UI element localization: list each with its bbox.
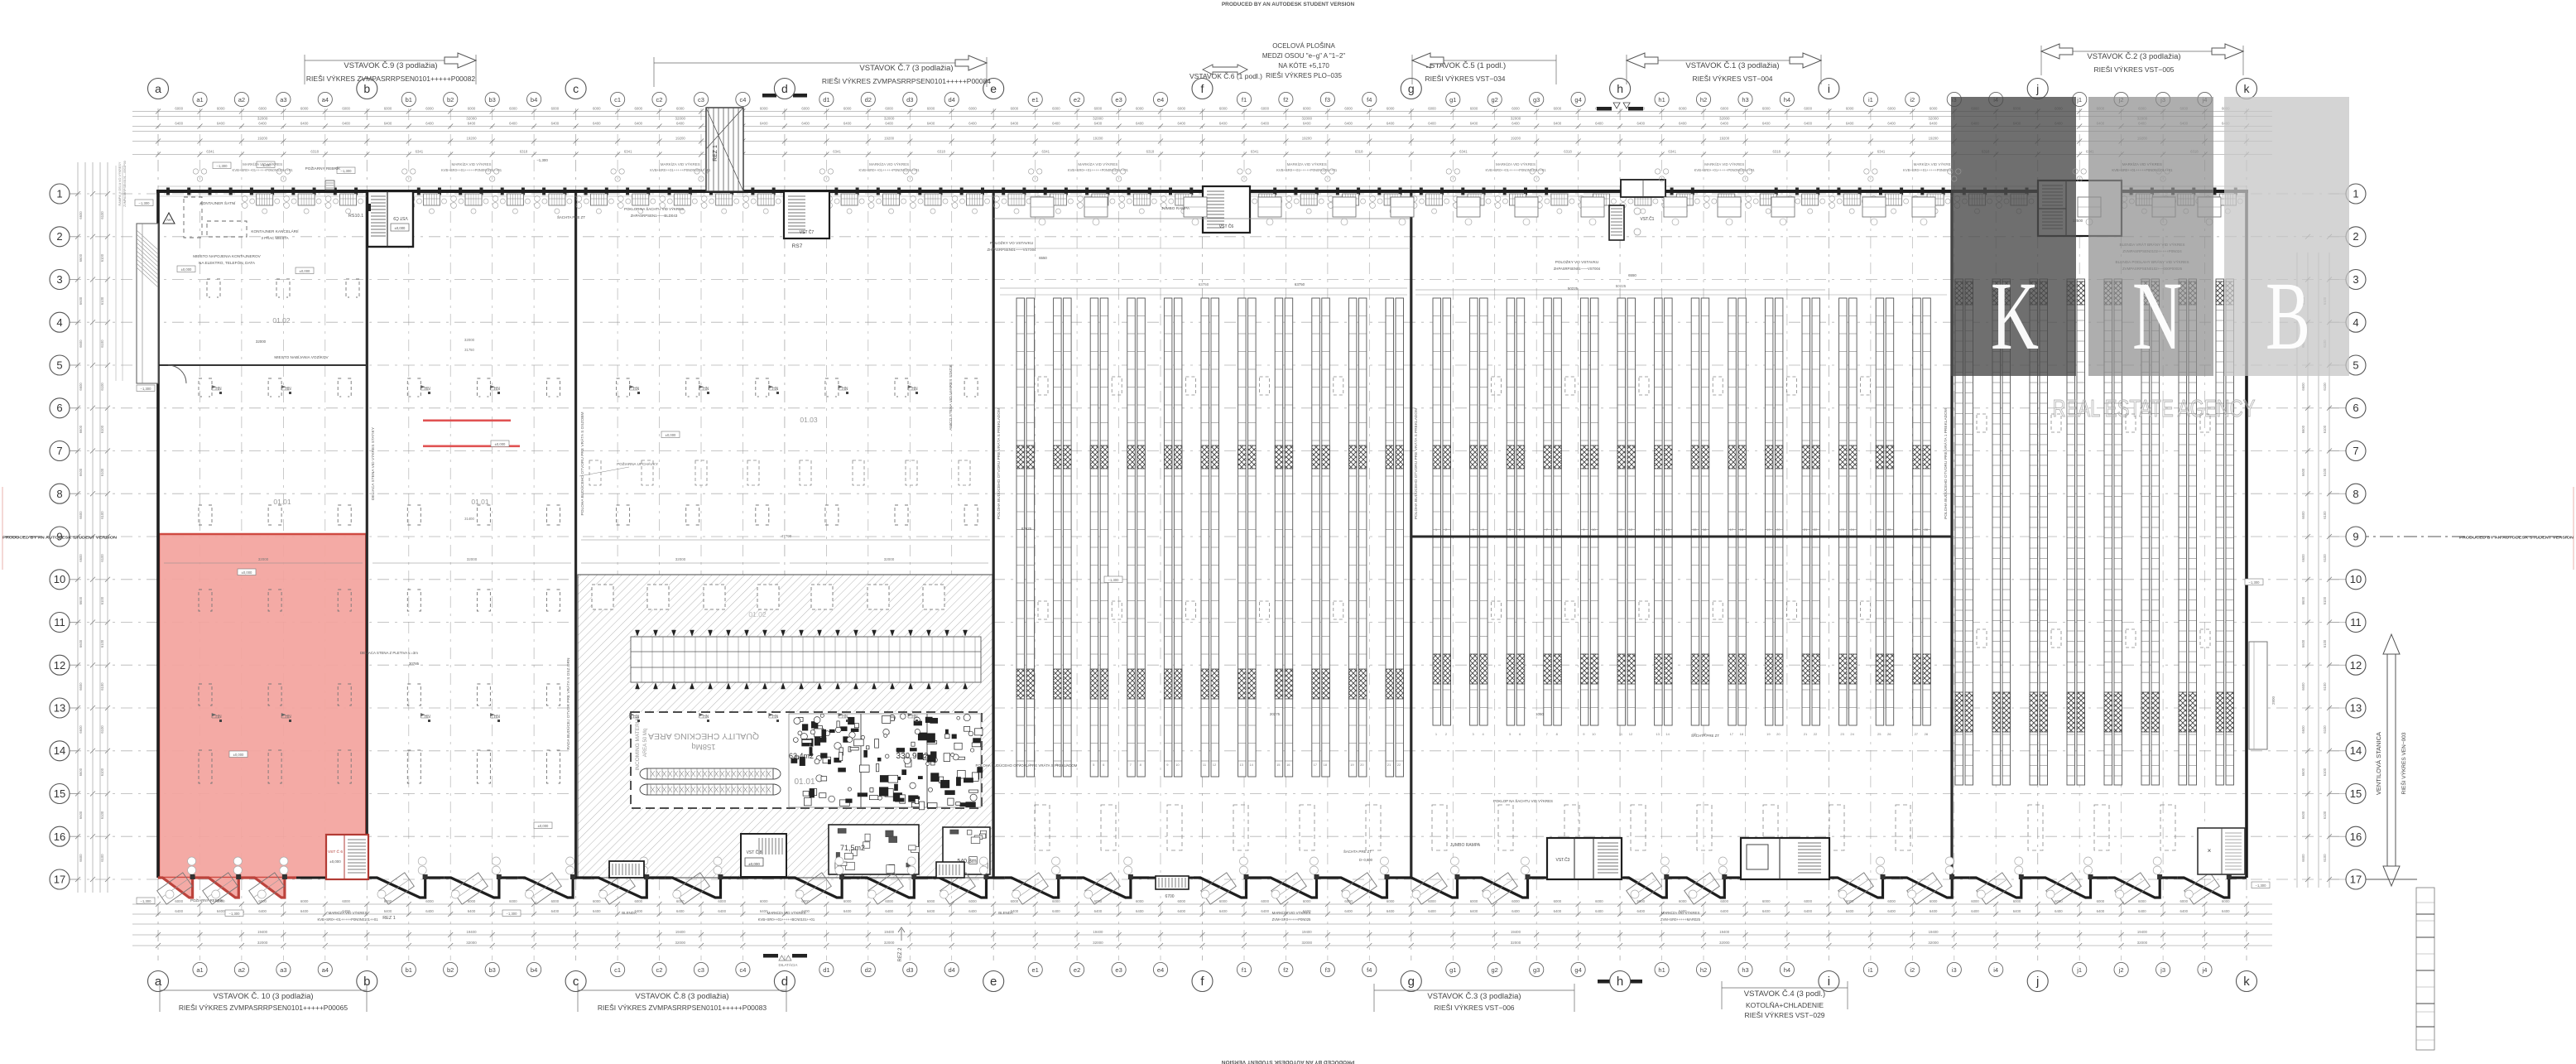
svg-text:c2: c2 [656, 96, 663, 104]
svg-text:±0,000: ±0,000 [329, 859, 341, 864]
svg-text:16: 16 [54, 830, 65, 843]
svg-text:ZHPASRPSEN1——BLD043: ZHPASRPSEN1——BLD043 [631, 214, 678, 218]
svg-text:28: 28 [1925, 732, 1929, 736]
svg-text:6600: 6600 [79, 383, 83, 391]
svg-text:6400: 6400 [1887, 909, 1896, 913]
svg-text:VSTAVOK Č.1 (3 podlažia): VSTAVOK Č.1 (3 podlažia) [1685, 61, 1779, 70]
svg-text:DELIACA STENA VID VÝKRES STATI: DELIACA STENA VID VÝKRES STATIKY [370, 426, 376, 500]
svg-text:MARKÍZA VID VÝKRES: MARKÍZA VID VÝKRES [1496, 161, 1536, 166]
svg-text:NA ELEKTRO, TELEFÓN, DATA: NA ELEKTRO, TELEFÓN, DATA [199, 260, 256, 265]
svg-text:6600: 6600 [79, 253, 83, 262]
svg-text:6318: 6318 [1773, 150, 1781, 154]
svg-text:6550: 6550 [1628, 273, 1636, 277]
svg-text:POŽIARNY REBRÍK: POŽIARNY REBRÍK [305, 165, 342, 171]
svg-text:POLOHA BUDÚCEHO OTVORU PRE VRÁ: POLOHA BUDÚCEHO OTVORU PRE VRÁTA 1 PREKL… [1943, 408, 1949, 519]
svg-text:6000: 6000 [635, 899, 643, 903]
svg-text:BLENDA: BLENDA [998, 911, 1013, 915]
svg-text:c2: c2 [656, 966, 663, 974]
svg-text:a2: a2 [238, 96, 245, 104]
svg-text:f2: f2 [1283, 966, 1288, 974]
svg-text:6400: 6400 [760, 122, 768, 126]
svg-text:f2: f2 [1283, 96, 1288, 104]
svg-text:18: 18 [1740, 527, 1744, 532]
svg-text:D−0,600: D−0,600 [1359, 858, 1373, 862]
svg-text:6100: 6100 [2323, 854, 2327, 862]
svg-text:f: f [1201, 82, 1204, 95]
svg-text:6600: 6600 [79, 511, 83, 519]
svg-text:6400: 6400 [885, 122, 893, 126]
svg-text:6400: 6400 [1554, 122, 1562, 126]
svg-text:POŽIARNY REBRÍK: POŽIARNY REBRÍK [190, 898, 223, 903]
svg-text:6600: 6600 [79, 339, 83, 348]
svg-text:MARKÍZA VID VÝKRES: MARKÍZA VID VÝKRES [2122, 161, 2162, 166]
svg-text:f4: f4 [1367, 96, 1372, 104]
svg-text:6400: 6400 [551, 909, 560, 913]
svg-text:b2: b2 [447, 966, 454, 974]
svg-text:c: c [573, 82, 579, 95]
svg-text:19200: 19200 [1929, 137, 1939, 141]
svg-text:6100: 6100 [2323, 425, 2327, 433]
svg-text:6600: 6600 [79, 725, 83, 734]
svg-text:6400: 6400 [1136, 122, 1144, 126]
svg-text:6400: 6400 [1261, 909, 1269, 913]
svg-text:6400: 6400 [1637, 122, 1646, 126]
svg-text:12: 12 [1629, 527, 1633, 532]
svg-text:MARKÍZA VID VÝKRES: MARKÍZA VID VÝKRES [451, 161, 491, 166]
svg-text:19200: 19200 [675, 137, 686, 141]
svg-text:RIEŠI VÝKRES VST−004: RIEŠI VÝKRES VST−004 [1692, 75, 1772, 83]
svg-text:6000: 6000 [1804, 899, 1812, 903]
svg-text:6000: 6000 [843, 107, 852, 111]
svg-text:6100: 6100 [2323, 725, 2327, 734]
svg-text:32000: 32000 [1928, 117, 1939, 121]
svg-text:6341: 6341 [416, 150, 424, 154]
svg-text:VSTAVOK Č.7 (3 podlažia): VSTAVOK Č.7 (3 podlažia) [859, 64, 953, 73]
svg-text:a1: a1 [196, 96, 203, 104]
svg-text:6100: 6100 [100, 854, 104, 862]
svg-text:i2: i2 [1910, 966, 1915, 974]
svg-text:6000: 6000 [1679, 107, 1687, 111]
svg-text:6100: 6100 [100, 339, 104, 348]
svg-text:±0,000: ±0,000 [748, 862, 760, 866]
svg-text:19400: 19400 [2137, 930, 2148, 934]
svg-text:6000: 6000 [175, 107, 183, 111]
svg-text:32000: 32000 [675, 117, 686, 121]
svg-text:31400: 31400 [464, 517, 474, 521]
svg-text:6600: 6600 [2301, 854, 2305, 862]
svg-text:a1: a1 [196, 966, 203, 974]
svg-text:POŽIARNA UPCHÁVKY: POŽIARNA UPCHÁVKY [617, 460, 658, 466]
svg-text:6100: 6100 [100, 811, 104, 819]
svg-text:6000: 6000 [1679, 899, 1687, 903]
svg-text:6318: 6318 [520, 150, 528, 154]
svg-text:h3: h3 [1742, 96, 1748, 104]
svg-text:f3: f3 [1325, 96, 1330, 104]
svg-text:11: 11 [2350, 616, 2362, 628]
svg-text:HN: HN [911, 387, 918, 392]
svg-text:6000: 6000 [801, 107, 810, 111]
svg-text:RIEŠI VÝKRES ZVMPASRRPSEN0101+: RIEŠI VÝKRES ZVMPASRRPSEN0101+++++P00082 [306, 75, 475, 83]
svg-text:AREA 50 Mq: AREA 50 Mq [643, 729, 648, 757]
svg-text:32000: 32000 [257, 117, 268, 121]
svg-text:6400: 6400 [1094, 909, 1103, 913]
svg-text:KOTOLŇA+CHLADENIE: KOTOLŇA+CHLADENIE [1746, 1001, 1824, 1009]
svg-text:b4: b4 [531, 966, 537, 974]
svg-text:6400: 6400 [468, 122, 476, 126]
svg-text:d1: d1 [823, 966, 829, 974]
svg-text:2: 2 [2353, 230, 2358, 243]
svg-text:6400: 6400 [927, 122, 935, 126]
svg-text:6400: 6400 [1136, 909, 1144, 913]
svg-text:d3: d3 [906, 96, 913, 104]
svg-text:−1,300: −1,300 [2256, 883, 2267, 888]
svg-text:b3: b3 [489, 96, 496, 104]
svg-text:b4: b4 [531, 96, 537, 104]
svg-text:c1: c1 [614, 96, 621, 104]
svg-text:6000: 6000 [1094, 107, 1103, 111]
svg-text:32000: 32000 [466, 941, 477, 945]
svg-text:19400: 19400 [467, 930, 478, 934]
svg-text:6400: 6400 [1971, 909, 1979, 913]
svg-text:VSTAVOK Č.9 (3 podlažia): VSTAVOK Č.9 (3 podlažia) [344, 61, 437, 70]
svg-text:6000: 6000 [1428, 899, 1436, 903]
svg-text:6000: 6000 [1261, 107, 1269, 111]
svg-text:158Mq: 158Mq [691, 742, 715, 751]
svg-text:32000: 32000 [466, 117, 477, 121]
svg-text:16: 16 [1286, 763, 1290, 767]
svg-text:6400: 6400 [1595, 122, 1603, 126]
svg-text:AH: AH [166, 218, 171, 222]
svg-text:32000: 32000 [1719, 941, 1730, 945]
svg-text:12: 12 [1629, 732, 1633, 736]
svg-text:19400: 19400 [675, 930, 686, 934]
svg-text:MEDZI OSOU "e−g" A "1−2": MEDZI OSOU "e−g" A "1−2" [1262, 52, 1345, 60]
svg-text:HN: HN [633, 715, 640, 720]
svg-text:RIEŠI VÝKRES ZVMPASRRPSEN0101+: RIEŠI VÝKRES ZVMPASRRPSEN0101+++++P00083 [598, 1004, 767, 1012]
svg-text:6600: 6600 [2301, 468, 2305, 476]
svg-text:6000: 6000 [1595, 899, 1603, 903]
svg-text:−1,300: −1,300 [141, 899, 152, 903]
svg-text:6000: 6000 [1303, 107, 1311, 111]
svg-text:6000: 6000 [676, 107, 685, 111]
svg-text:b3: b3 [489, 966, 496, 974]
svg-text:KVB+SR0++01+++++P0N0N0101++01: KVB+SR0++01+++++P0N0N0101++01 [233, 168, 294, 172]
svg-text:HN: HN [842, 715, 848, 720]
svg-text:6000: 6000 [1554, 107, 1562, 111]
svg-text:6400: 6400 [551, 122, 560, 126]
svg-text:MARKÍZA VID VÝKRES: MARKÍZA VID VÝKRES [1272, 911, 1311, 915]
svg-text:h: h [1617, 82, 1623, 95]
svg-text:2800: 2800 [2271, 696, 2276, 705]
svg-text:22: 22 [1814, 527, 1818, 532]
svg-text:32000: 32000 [258, 557, 269, 561]
svg-text:6100: 6100 [2323, 682, 2327, 691]
svg-text:01.01: 01.01 [471, 498, 489, 506]
svg-text:27: 27 [1915, 732, 1919, 736]
svg-text:26: 26 [1887, 527, 1891, 532]
svg-text:a: a [155, 975, 162, 989]
svg-text:22: 22 [1397, 763, 1401, 767]
svg-text:i3: i3 [1952, 966, 1957, 974]
svg-text:RS10.1: RS10.1 [348, 214, 363, 219]
svg-text:01.01: 01.01 [273, 498, 291, 506]
svg-text:6000: 6000 [1470, 107, 1478, 111]
svg-text:6600: 6600 [2301, 554, 2305, 562]
svg-text:±0,000: ±0,000 [300, 269, 310, 273]
svg-text:e4: e4 [1157, 96, 1164, 104]
svg-text:24: 24 [1850, 732, 1854, 736]
svg-text:20: 20 [1776, 527, 1781, 532]
svg-text:6000: 6000 [1136, 899, 1144, 903]
svg-text:6100: 6100 [100, 596, 104, 604]
svg-text:13: 13 [1656, 527, 1660, 532]
svg-text:6318: 6318 [310, 150, 319, 154]
svg-text:6000: 6000 [2013, 899, 2021, 903]
svg-text:MARKÍZA VID VÝKRES: MARKÍZA VID VÝKRES [1914, 161, 1954, 166]
svg-text:−1,300: −1,300 [139, 201, 151, 205]
svg-text:e2: e2 [1074, 966, 1080, 974]
svg-text:1: 1 [2353, 188, 2358, 200]
svg-text:32000: 32000 [675, 941, 686, 945]
svg-text:B: B [2266, 262, 2310, 370]
svg-text:6400: 6400 [425, 122, 434, 126]
svg-text:6400: 6400 [258, 122, 267, 126]
svg-text:a4: a4 [322, 966, 329, 974]
svg-text:17: 17 [54, 874, 65, 886]
svg-text:6100: 6100 [2323, 511, 2327, 519]
svg-text:c4: c4 [739, 96, 746, 104]
svg-text:i1: i1 [1868, 96, 1873, 104]
svg-text:KVB+SR0++01+++++P0N0N0101++01: KVB+SR0++01+++++P0N0N0101++01 [1694, 168, 1756, 172]
svg-text:REAL ESTATE AGENCY: REAL ESTATE AGENCY [2053, 396, 2256, 422]
svg-text:d3: d3 [906, 966, 913, 974]
svg-text:c4: c4 [739, 966, 746, 974]
svg-text:6400: 6400 [1470, 122, 1478, 126]
svg-text:6400: 6400 [2013, 909, 2021, 913]
svg-text:ZVM+SR0+++++P0N025: ZVM+SR0+++++P0N025 [1272, 917, 1311, 922]
svg-text:6400: 6400 [384, 122, 392, 126]
svg-text:32000: 32000 [256, 339, 267, 344]
svg-text:6400: 6400 [1178, 909, 1186, 913]
svg-text:10: 10 [1592, 732, 1596, 736]
svg-text:j2: j2 [2118, 966, 2124, 974]
svg-text:6000: 6000 [2138, 899, 2146, 903]
svg-text:6400: 6400 [2097, 909, 2105, 913]
svg-text:POLOHA BUDÚCEHO OTVORU PRE VRÁ: POLOHA BUDÚCEHO OTVORU PRE VRÁTA S OSZOB… [579, 412, 585, 516]
svg-text:6400: 6400 [1762, 122, 1771, 126]
svg-text:6100: 6100 [100, 639, 104, 648]
svg-text:POLOHA BUDÚCEHO OTVORU PRE VRÁ: POLOHA BUDÚCEHO OTVORU PRE VRÁTA S PREKL… [996, 408, 1002, 519]
svg-text:d2: d2 [865, 96, 872, 104]
svg-text:d1: d1 [823, 96, 829, 104]
svg-text:c3: c3 [698, 966, 704, 974]
svg-text:01.02: 01.02 [748, 610, 767, 619]
svg-text:KVB+SR0++01+++++P0N0N0101++01: KVB+SR0++01+++++P0N0N0101++01 [650, 168, 711, 172]
svg-text:i2: i2 [1910, 96, 1915, 104]
svg-text:6400: 6400 [1804, 122, 1812, 126]
svg-text:NA KÓTE +5,170: NA KÓTE +5,170 [1278, 62, 1329, 70]
svg-text:6100: 6100 [2323, 383, 2327, 391]
svg-text:h2: h2 [1700, 966, 1707, 974]
svg-text:j4: j4 [2202, 966, 2208, 974]
svg-text:6400: 6400 [175, 122, 183, 126]
svg-text:32000: 32000 [1511, 117, 1521, 121]
svg-text:ŠACHTA PRE ZT: ŠACHTA PRE ZT [1691, 734, 1719, 738]
svg-text:RIEŠI VÝKRES VST−029: RIEŠI VÝKRES VST−029 [1744, 1011, 1824, 1019]
svg-text:MARKÍZA VID VÝKRES: MARKÍZA VID VÝKRES [767, 911, 806, 915]
svg-text:6600: 6600 [79, 639, 83, 648]
svg-text:a2: a2 [238, 966, 245, 974]
svg-text:b2: b2 [447, 96, 454, 104]
svg-text:6000: 6000 [1178, 107, 1186, 111]
svg-text:6341: 6341 [624, 150, 632, 154]
svg-text:6400: 6400 [1804, 909, 1812, 913]
svg-text:h4: h4 [1784, 966, 1790, 974]
svg-text:MARKÍZA VID VÝKRES: MARKÍZA VID VÝKRES [1078, 161, 1117, 166]
svg-text:6400: 6400 [968, 909, 977, 913]
svg-text:−1,300: −1,300 [507, 912, 518, 916]
svg-text:6400: 6400 [676, 909, 685, 913]
svg-text:INCOMING MATERIAL: INCOMING MATERIAL [635, 715, 641, 770]
svg-text:14: 14 [2350, 744, 2362, 757]
svg-text:15: 15 [54, 787, 65, 800]
svg-text:HN: HN [425, 715, 431, 720]
svg-text:REZ 1: REZ 1 [382, 916, 396, 921]
svg-text:6000: 6000 [551, 107, 560, 111]
svg-text:6100: 6100 [100, 768, 104, 776]
svg-text:KONTAJNER KANCELÁRIÍ: KONTAJNER KANCELÁRIÍ [251, 229, 299, 234]
svg-text:6600: 6600 [79, 596, 83, 604]
svg-text:10: 10 [2350, 573, 2362, 585]
svg-text:VSTAVOK Č.3 (3 podlažia): VSTAVOK Č.3 (3 podlažia) [1427, 992, 1521, 1001]
svg-text:−1,300: −1,300 [2249, 580, 2261, 585]
svg-text:17: 17 [1730, 527, 1734, 532]
svg-text:19400: 19400 [1093, 930, 1103, 934]
svg-text:3: 3 [56, 273, 62, 286]
svg-text:6000: 6000 [1261, 899, 1269, 903]
svg-text:6341: 6341 [206, 150, 214, 154]
svg-text:6000: 6000 [1762, 107, 1771, 111]
svg-text:i1: i1 [1868, 966, 1873, 974]
svg-text:6400: 6400 [1303, 122, 1311, 126]
svg-text:6400: 6400 [217, 909, 225, 913]
svg-text:OCELOVÁ PLOŠINA: OCELOVÁ PLOŠINA [1272, 42, 1335, 50]
svg-text:MARKÍZA VID VÝKRES: MARKÍZA VID VÝKRES [1287, 161, 1327, 166]
svg-text:6000: 6000 [1804, 107, 1812, 111]
svg-text:32000: 32000 [2137, 941, 2148, 945]
svg-text:MIESTO NABÍJANIA VOZÍKOV: MIESTO NABÍJANIA VOZÍKOV [274, 354, 329, 359]
svg-text:21: 21 [1804, 732, 1808, 736]
svg-text:6000: 6000 [927, 107, 935, 111]
svg-text:6000: 6000 [509, 107, 517, 111]
svg-text:63750: 63750 [1295, 282, 1305, 286]
svg-text:14: 14 [54, 744, 65, 757]
svg-text:ZVMPASRRPSEN0101—0002P00: ZVMPASRRPSEN0101—0002P00 [123, 161, 127, 206]
svg-text:RIEŠI VÝKRES VST−006: RIEŠI VÝKRES VST−006 [1434, 1004, 1514, 1012]
svg-text:25: 25 [1877, 732, 1882, 736]
svg-text:VSTAVOK Č.8 (3 podlažia): VSTAVOK Č.8 (3 podlažia) [635, 992, 728, 1001]
svg-text:6000: 6000 [1011, 899, 1019, 903]
svg-text:6400: 6400 [1846, 122, 1854, 126]
svg-text:6400: 6400 [801, 122, 810, 126]
svg-text:6000: 6000 [1511, 899, 1520, 903]
svg-text:6000: 6000 [1971, 899, 1979, 903]
svg-text:6400: 6400 [1720, 909, 1728, 913]
svg-text:QUALITY CHECKING AREA: QUALITY CHECKING AREA [648, 731, 759, 741]
svg-text:13: 13 [1656, 732, 1660, 736]
svg-text:32000: 32000 [675, 557, 686, 561]
svg-text:32000: 32000 [1093, 941, 1103, 945]
svg-text:6000: 6000 [593, 899, 601, 903]
svg-text:6400: 6400 [2180, 909, 2189, 913]
svg-text:d4: d4 [949, 96, 955, 104]
svg-text:6400: 6400 [1387, 122, 1395, 126]
svg-text:d: d [781, 82, 788, 95]
svg-text:6: 6 [2353, 402, 2358, 414]
svg-text:6318: 6318 [1355, 150, 1363, 154]
svg-text:h: h [1617, 975, 1623, 989]
svg-text:1050: 1050 [1536, 712, 1544, 716]
svg-text:POKLOP NA ŠACHTU VID VÝKRES: POKLOP NA ŠACHTU VID VÝKRES [624, 207, 684, 211]
svg-text:d4: d4 [949, 966, 955, 974]
svg-text:23: 23 [1840, 527, 1844, 532]
svg-text:a3: a3 [280, 966, 286, 974]
svg-text:MARKÍZA VID VÝKRES: MARKÍZA VID VÝKRES [661, 161, 700, 166]
svg-text:6400: 6400 [1679, 122, 1687, 126]
svg-text:MARKÍZA VID VÝKRES: MARKÍZA VID VÝKRES [1661, 911, 1700, 915]
svg-text:KVB+SR0++01+++++P0N0N0101++01: KVB+SR0++01+++++P0N0N0101++01 [317, 917, 378, 922]
svg-text:h3: h3 [1742, 966, 1748, 974]
svg-text:KVB+SR0++01+++++P0N0N0101++01: KVB+SR0++01+++++P0N0N0101++01 [1903, 168, 1964, 172]
svg-text:VST.Č3: VST.Č3 [1556, 857, 1570, 863]
svg-text:15: 15 [1276, 763, 1281, 767]
svg-text:19: 19 [1766, 732, 1771, 736]
svg-text:19: 19 [1766, 527, 1771, 532]
svg-text:82625: 82625 [1021, 527, 1032, 531]
svg-text:6400: 6400 [1011, 122, 1019, 126]
svg-text:6000: 6000 [885, 107, 893, 111]
svg-text:6000: 6000 [1511, 107, 1520, 111]
svg-text:6000: 6000 [593, 107, 601, 111]
svg-text:10: 10 [54, 573, 65, 585]
svg-text:HN: HN [703, 715, 709, 720]
svg-text:17: 17 [1314, 763, 1318, 767]
svg-text:6100: 6100 [2323, 639, 2327, 648]
svg-text:6600: 6600 [79, 554, 83, 562]
svg-text:6400: 6400 [1930, 122, 1938, 126]
svg-text:KVB+SR0++01+++++BCN0101++01: KVB+SR0++01+++++BCN0101++01 [758, 917, 815, 922]
svg-text:32000: 32000 [1301, 117, 1312, 121]
svg-text:17: 17 [1730, 732, 1734, 736]
svg-text:6600: 6600 [2301, 596, 2305, 604]
svg-text:RS7: RS7 [792, 243, 803, 249]
svg-text:±0,000: ±0,000 [395, 226, 406, 230]
svg-text:j1: j1 [2076, 96, 2082, 104]
svg-text:6000: 6000 [1219, 107, 1228, 111]
svg-text:DELIACA STENA Z PLETIVA v.=3m: DELIACA STENA Z PLETIVA v.=3m [360, 651, 418, 655]
svg-text:−1,300: −1,300 [1108, 578, 1120, 582]
svg-text:19200: 19200 [1093, 137, 1103, 141]
svg-text:6100: 6100 [100, 554, 104, 562]
svg-text:j: j [2035, 82, 2039, 95]
svg-text:15: 15 [1693, 527, 1697, 532]
svg-text:7: 7 [56, 445, 62, 457]
svg-text:6400: 6400 [1178, 122, 1186, 126]
svg-text:6100: 6100 [100, 211, 104, 219]
svg-text:14: 14 [1665, 527, 1670, 532]
svg-text:KVB+SR0++01+++++P0N0N0101++01: KVB+SR0++01+++++P0N0N0101++01 [859, 168, 920, 172]
svg-text:VSTAVOK Č. 10 (3 podlažia): VSTAVOK Č. 10 (3 podlažia) [213, 992, 313, 1001]
